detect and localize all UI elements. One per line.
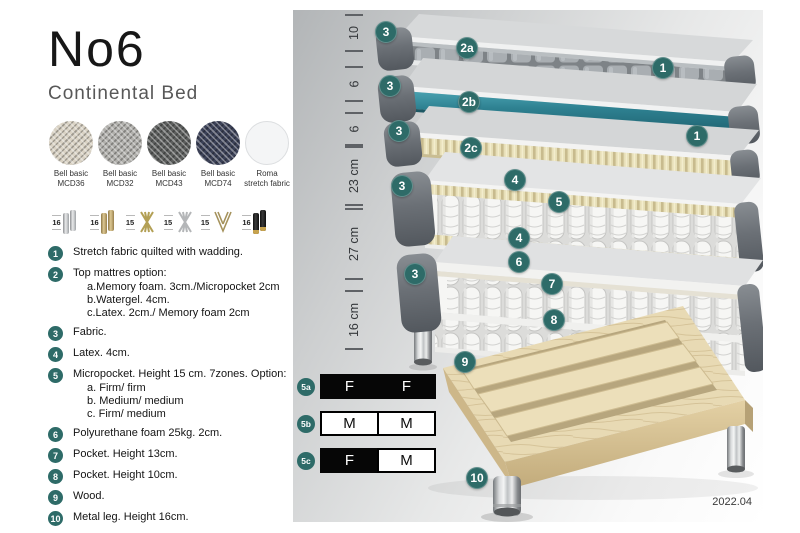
fabric-swatch-image: [49, 121, 93, 165]
leg-height: 15: [126, 215, 135, 230]
fabric-swatches: Bell basicMCD36 Bell basicMCD32 Bell bas…: [48, 121, 293, 189]
feature-list: 1 Stretch fabric quilted with wadding. 2…: [48, 246, 293, 526]
layer-badge-3: 3: [379, 75, 401, 97]
firmness-id-badge: 5c: [297, 452, 315, 470]
leg-option: 15: [162, 196, 196, 236]
fabric-swatch-image: [98, 121, 142, 165]
version-stamp: 2022.04: [712, 496, 752, 508]
firmness-matrix: 5a F F 5b M M 5c F M: [297, 374, 447, 485]
leg-hairpin-icon: [212, 210, 234, 234]
fabric-swatch-image: [245, 121, 289, 165]
dimension-label: 23 cm: [337, 146, 371, 206]
firmness-row-5c: 5c F M: [297, 448, 447, 473]
feature-number-badge: 6: [48, 427, 63, 442]
leg-height: 16: [90, 215, 99, 230]
feature-number-badge: 3: [48, 326, 63, 341]
fabric-swatch: Bell basicMCD36: [48, 121, 94, 189]
firmness-row-5b: 5b M M: [297, 411, 447, 436]
fabric-swatch-image: [196, 121, 240, 165]
fabric-swatch: Bell basicMCD74: [195, 121, 241, 189]
firmness-cell: M: [320, 411, 379, 436]
fabric-name: Bell basic: [103, 169, 137, 178]
firmness-cell: F: [377, 374, 436, 399]
feature-text: Metal leg. Height 16cm.: [73, 511, 189, 526]
layer-badge-4: 4: [504, 169, 526, 191]
feature-item: 7 Pocket. Height 13cm.: [48, 448, 287, 463]
feature-text: Top mattres option:: [73, 267, 167, 279]
dimension-label: 6: [337, 66, 371, 102]
leg-option: 15: [124, 196, 158, 236]
feature-text: Fabric.: [73, 326, 107, 341]
layer-badge-3: 3: [391, 175, 413, 197]
feature-item: 8 Pocket. Height 10cm.: [48, 469, 287, 484]
firmness-cell: M: [377, 411, 436, 436]
feature-options: a.Memory foam. 3cm./Micropocket 2cm b.Wa…: [87, 281, 280, 320]
product-title: No6: [48, 24, 293, 74]
feature-text: Pocket. Height 10cm.: [73, 469, 178, 484]
feature-item: 10 Metal leg. Height 16cm.: [48, 511, 287, 526]
firmness-cell: F: [320, 448, 379, 473]
layer-badge-10: 10: [466, 467, 488, 489]
firmness-id-badge: 5a: [297, 378, 315, 396]
firmness-row-5a: 5a F F: [297, 374, 447, 399]
metal-leg-right: [718, 426, 754, 478]
feature-text: Latex. 4cm.: [73, 347, 130, 362]
feature-item: 3 Fabric.: [48, 326, 287, 341]
fabric-swatch: Bell basicMCD43: [146, 121, 192, 189]
leg-crossed-silver-icon: [175, 210, 195, 234]
leg-cylinder-black-gold-icon: [253, 210, 268, 234]
layer-badge-5: 5: [548, 191, 570, 213]
feature-number-badge: 8: [48, 469, 63, 484]
feature-item: 4 Latex. 4cm.: [48, 347, 287, 362]
layer-badge-2b: 2b: [458, 91, 480, 113]
info-column: No6 Continental Bed Bell basicMCD36 Bell…: [0, 0, 293, 533]
fabric-code: MCD32: [106, 179, 133, 188]
layer-badge-3: 3: [404, 263, 426, 285]
feature-options: a. Firm/ firm b. Medium/ medium c. Firm/…: [87, 382, 286, 421]
feature-number-badge: 10: [48, 511, 63, 526]
feature-number-badge: 5: [48, 368, 63, 383]
feature-item: 5 Micropocket. Height 15 cm. 7zones. Opt…: [48, 368, 287, 421]
feature-item: 9 Wood.: [48, 490, 287, 505]
layer-badge-1: 1: [686, 125, 708, 147]
feature-item: 2 Top mattres option: a.Memory foam. 3cm…: [48, 267, 287, 320]
layer-badge-2a: 2a: [456, 37, 478, 59]
feature-item: 1 Stretch fabric quilted with wadding.: [48, 246, 287, 261]
feature-number-badge: 1: [48, 246, 63, 261]
product-sheet: No6 Continental Bed Bell basicMCD36 Bell…: [0, 0, 800, 533]
dimension-label: 10: [337, 14, 371, 52]
dimension-label: 27 cm: [337, 208, 371, 280]
leg-option: 16: [238, 196, 272, 236]
layer-badge-7: 7: [541, 273, 563, 295]
fabric-swatch: Romastretch fabric: [244, 121, 290, 189]
feature-text: Polyurethane foam 25kg. 2cm.: [73, 427, 222, 442]
firmness-cell: M: [377, 448, 436, 473]
leg-height: 16: [52, 215, 61, 230]
leg-height: 16: [242, 215, 251, 230]
layer-badge-9: 9: [454, 351, 476, 373]
layer-badge-2c: 2c: [460, 137, 482, 159]
exploded-diagram-panel: 10 6 6 23 cm 27 cm 16 cm 3 2a 1 3 2b 3 2…: [293, 10, 763, 522]
leg-option: 16: [86, 196, 120, 236]
feature-text: Micropocket. Height 15 cm. 7zones. Optio…: [73, 368, 286, 380]
fabric-code: MCD36: [57, 179, 84, 188]
leg-height: 15: [164, 215, 173, 230]
feature-text: Pocket. Height 13cm.: [73, 448, 178, 463]
leg-crossed-gold-icon: [137, 210, 157, 234]
fabric-name: Bell basic: [152, 169, 186, 178]
feature-number-badge: 7: [48, 448, 63, 463]
feature-item: 6 Polyurethane foam 25kg. 2cm.: [48, 427, 287, 442]
fabric-code: stretch fabric: [244, 179, 290, 188]
firmness-cell: F: [320, 374, 379, 399]
leg-option: 15: [200, 196, 234, 236]
leg-cylinder-silver-icon: [63, 210, 78, 234]
layer-badge-4: 4: [508, 227, 530, 249]
feature-number-badge: 2: [48, 267, 63, 282]
layer-badge-1: 1: [652, 57, 674, 79]
feature-text: Stretch fabric quilted with wadding.: [73, 246, 243, 261]
leg-cylinder-brass-icon: [101, 210, 116, 234]
fabric-code: MCD74: [204, 179, 231, 188]
dimension-label: 6: [337, 112, 371, 146]
layer-badge-3: 3: [375, 21, 397, 43]
fabric-swatch-image: [147, 121, 191, 165]
product-subtitle: Continental Bed: [48, 83, 293, 105]
firmness-id-badge: 5b: [297, 415, 315, 433]
dimension-label: 16 cm: [337, 290, 371, 350]
fabric-swatch: Bell basicMCD32: [97, 121, 143, 189]
layer-badge-8: 8: [543, 309, 565, 331]
leg-height: 15: [201, 215, 210, 230]
leg-options: 16 16 15 15 15: [48, 196, 293, 236]
fabric-name: Bell basic: [54, 169, 88, 178]
feature-number-badge: 4: [48, 347, 63, 362]
layer-badge-3: 3: [388, 120, 410, 142]
fabric-name: Roma: [256, 169, 277, 178]
feature-text: Wood.: [73, 490, 105, 505]
feature-number-badge: 9: [48, 490, 63, 505]
fabric-name: Bell basic: [201, 169, 235, 178]
fabric-code: MCD43: [155, 179, 182, 188]
layer-badge-6: 6: [508, 251, 530, 273]
leg-option: 16: [48, 196, 82, 236]
